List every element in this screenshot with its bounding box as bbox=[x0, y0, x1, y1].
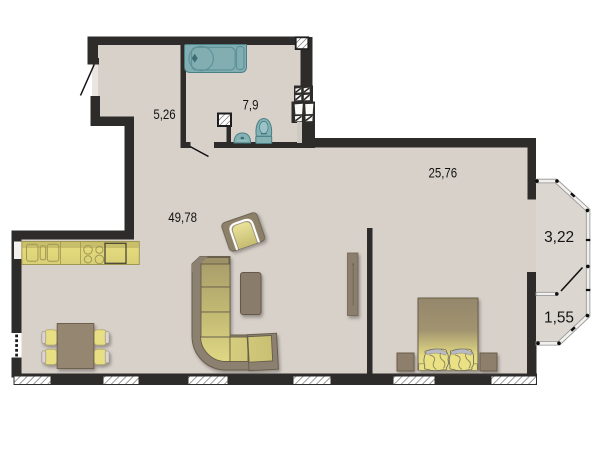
svg-text:1,55: 1,55 bbox=[544, 310, 574, 327]
svg-text:7,9: 7,9 bbox=[243, 96, 259, 112]
svg-text:49,78: 49,78 bbox=[168, 209, 197, 225]
svg-text:25,76: 25,76 bbox=[428, 164, 457, 180]
svg-text:5,26: 5,26 bbox=[153, 106, 175, 122]
svg-text:3,22: 3,22 bbox=[544, 229, 574, 246]
